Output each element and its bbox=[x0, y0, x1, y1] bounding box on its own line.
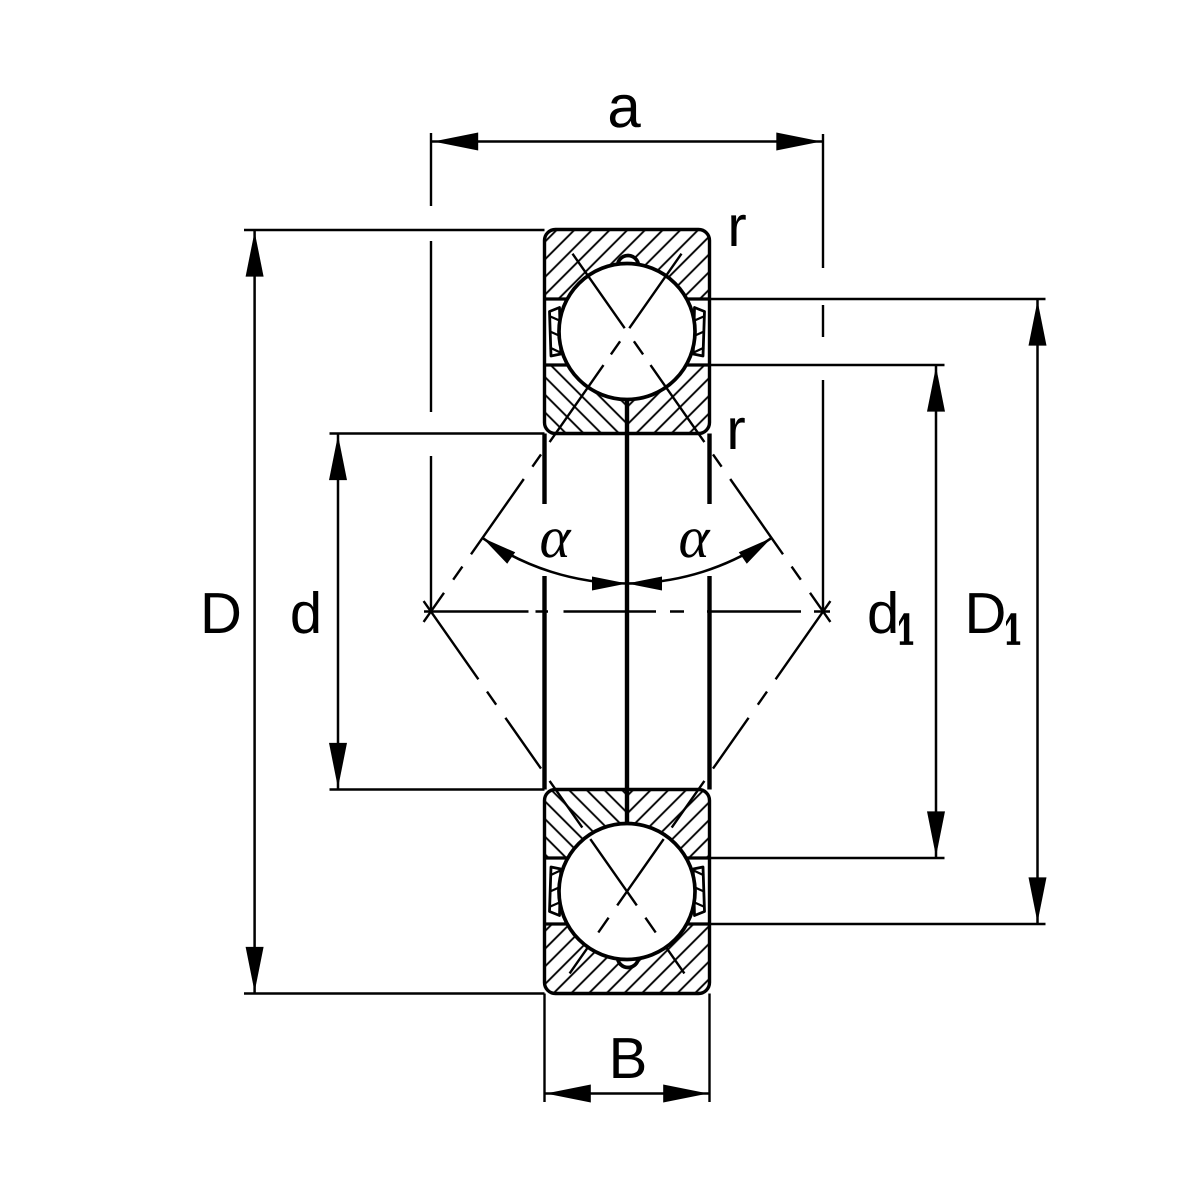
svg-text:α: α bbox=[679, 504, 711, 570]
svg-text:d: d bbox=[290, 581, 322, 646]
svg-text:D: D bbox=[200, 581, 242, 646]
svg-text:B: B bbox=[609, 1026, 648, 1091]
svg-text:r: r bbox=[726, 397, 745, 462]
svg-text:d: d bbox=[867, 581, 899, 646]
svg-text:D: D bbox=[965, 581, 1007, 646]
svg-text:a: a bbox=[607, 73, 641, 140]
svg-text:α: α bbox=[540, 504, 572, 570]
svg-text:r: r bbox=[727, 194, 746, 259]
